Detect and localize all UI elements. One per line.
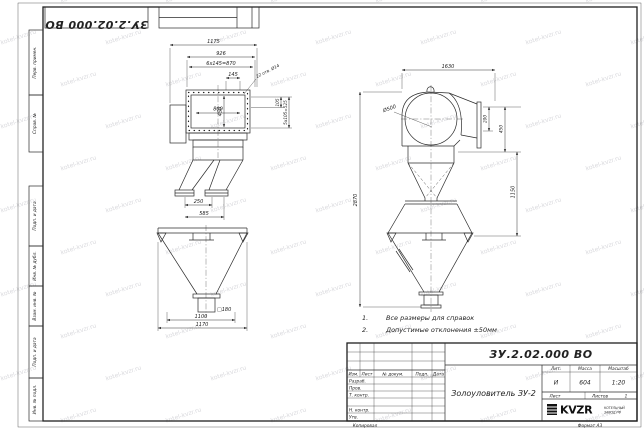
- kvzr-logo-icon: [547, 404, 557, 415]
- lit-label: Лит.: [550, 366, 561, 372]
- sign-row-label: Т. контр.: [349, 393, 369, 399]
- dim-square-180: □180: [217, 307, 231, 313]
- col-header: Лист: [361, 372, 373, 378]
- dim-450-side: 450: [499, 125, 504, 133]
- format-label: Формат А3: [578, 423, 603, 429]
- dim-145: 145: [228, 72, 238, 78]
- company-logo-text: KVZR: [560, 404, 593, 417]
- side-view: [387, 85, 481, 312]
- sign-row-label: Н. контр.: [349, 408, 370, 414]
- sheets-label: Листов: [591, 394, 609, 400]
- dim-585: 585: [199, 211, 209, 217]
- sheets-value: 1: [625, 394, 628, 400]
- notes: 1. Все размеры для справок 2. Допустимые…: [362, 314, 497, 334]
- dim-450-front: 450: [218, 107, 224, 117]
- copied-label: Копировал: [353, 423, 378, 429]
- margin-label: Подп. и дата: [32, 201, 38, 231]
- col-header: Изм.: [348, 372, 358, 378]
- stamp-doc-number: ЗУ.2.02.000 ВО: [45, 18, 148, 31]
- margin-label: Перв. примен.: [32, 46, 38, 78]
- margin-column: Перв. примен. Справ. № Подп. и дата Инв.…: [29, 30, 43, 421]
- top-stamp: ЗУ.2.02.000 ВО: [45, 7, 259, 31]
- sheet-frame: [18, 3, 641, 427]
- lit-value: И: [554, 380, 559, 387]
- sign-row-label: Разраб.: [349, 379, 366, 385]
- dim-1100: 1100: [195, 314, 208, 320]
- sign-row-label: Пров.: [349, 386, 362, 392]
- scale-value: 1:20: [612, 380, 626, 387]
- margin-label: Подп. и дата: [32, 337, 38, 367]
- dim-1170: 1170: [196, 322, 209, 328]
- dim-1630: 1630: [442, 64, 455, 70]
- margin-label: Взам. инв. №: [32, 291, 38, 321]
- mass-label: Масса: [578, 366, 592, 372]
- dim-525: 5x105=525: [283, 100, 288, 125]
- front-view: [157, 85, 250, 318]
- note-number: 2.: [362, 326, 368, 334]
- dim-diameter-500: Ø500: [381, 103, 397, 115]
- dim-1175: 1175: [207, 39, 220, 45]
- mass-value: 604: [579, 380, 591, 387]
- holes-callout: 22 отв. Ø14: [255, 63, 280, 79]
- dim-200: 200: [483, 115, 488, 123]
- note-text: Допустимые отклонения ±50мм: [385, 326, 497, 334]
- note-number: 1.: [362, 314, 368, 322]
- margin-label: Инв. № дубл.: [32, 251, 38, 280]
- col-header: Дата: [432, 372, 444, 378]
- drawing-sheet: Перв. примен. Справ. № Подп. и дата Инв.…: [0, 0, 644, 430]
- side-view-dims: 1630 Ø500 2870 200 450 1150: [353, 64, 521, 307]
- dim-2870: 2870: [353, 194, 359, 207]
- sheet-footer: Копировал Формат А3: [353, 423, 603, 429]
- sign-row-label: Утв.: [349, 415, 358, 421]
- col-header: Подп.: [415, 372, 428, 378]
- company-name-line2: ЗАВОД.РФ: [604, 411, 621, 415]
- note-text: Все размеры для справок: [386, 314, 474, 322]
- scale-label: Масштаб: [608, 366, 629, 372]
- dim-1150: 1150: [511, 186, 517, 199]
- drawing-page: kotel-kvzr.rukotel-kvzr.rukotel-kvzr.ruk…: [0, 0, 644, 430]
- dim-250: 250: [194, 199, 204, 205]
- dim-105: 105: [275, 98, 280, 106]
- title-block: ЗУ.2.02.000 ВО Золоуловитель ЗУ-2 Изм. Л…: [347, 343, 637, 421]
- dim-870: 6x145=870: [206, 61, 235, 67]
- titleblock-doc-number: ЗУ.2.02.000 ВО: [489, 348, 592, 361]
- margin-label: Инв. № подл.: [32, 385, 38, 415]
- titleblock-product-name: Золоуловитель ЗУ-2: [451, 389, 536, 398]
- col-header: № докум.: [381, 372, 403, 378]
- margin-label: Справ. №: [32, 113, 38, 134]
- sheet-label: Лист: [549, 394, 561, 400]
- front-view-dims: 1175 926 6x145=870 145 22 отв. Ø14 800 4…: [158, 39, 292, 331]
- company-name-line1: КОТЕЛЬНЫЙ: [604, 405, 625, 410]
- dim-926: 926: [216, 51, 226, 57]
